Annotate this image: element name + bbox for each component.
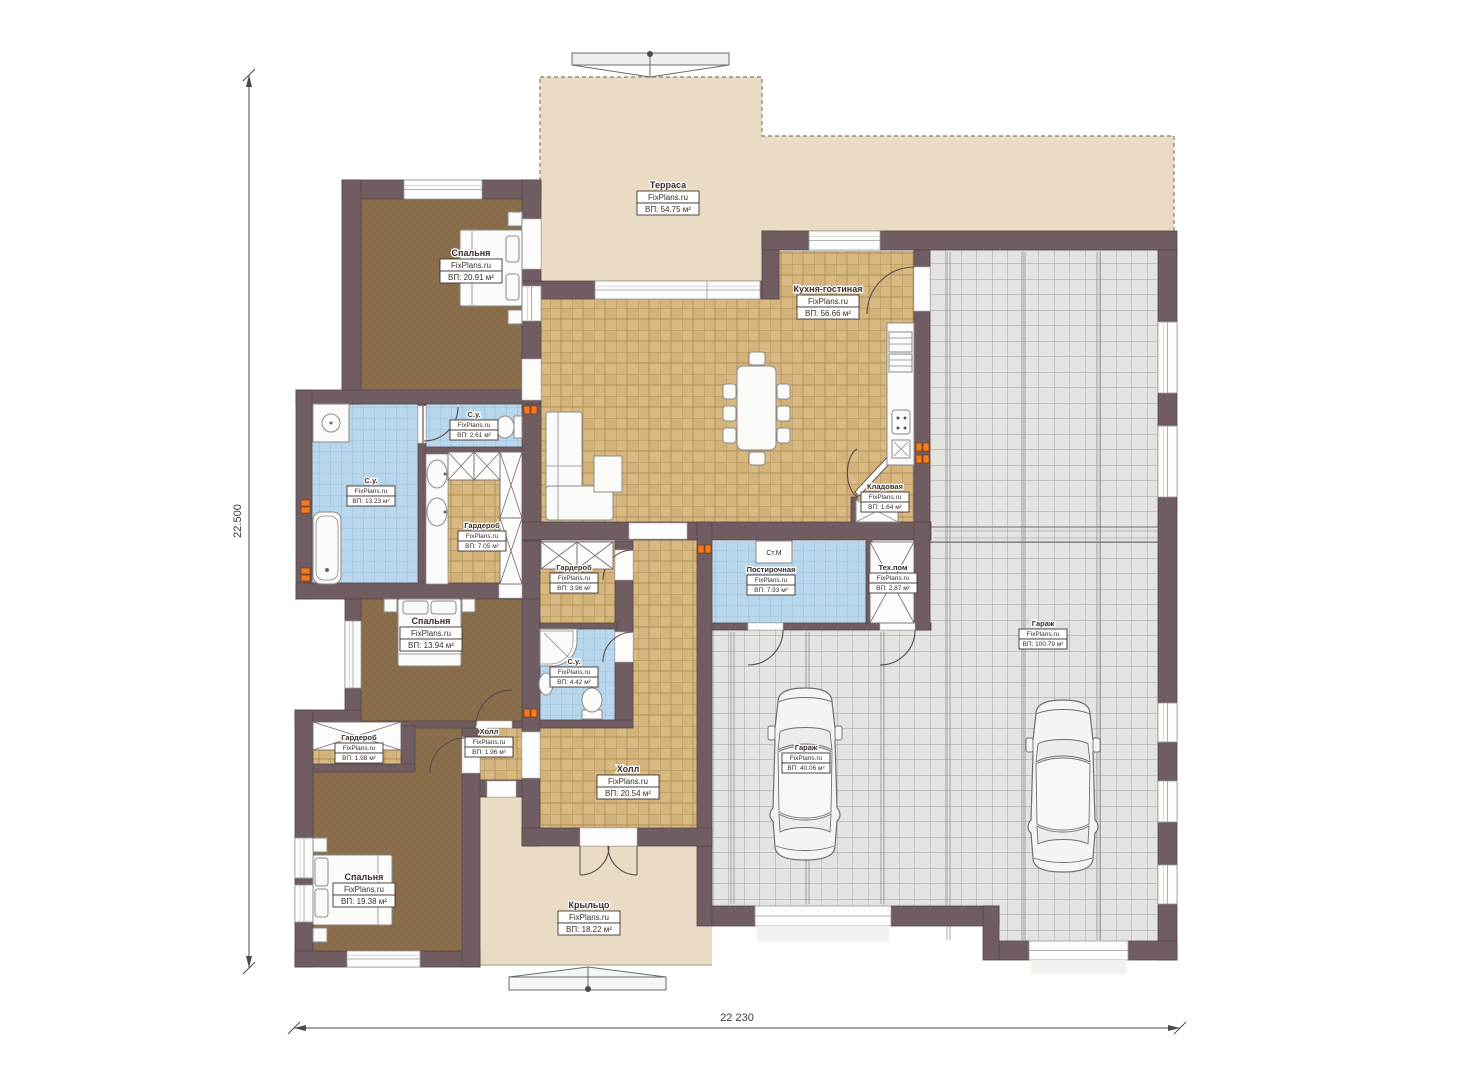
svg-text:ВП: 54.75 м²: ВП: 54.75 м² <box>645 205 691 214</box>
svg-text:Спальня: Спальня <box>412 616 451 626</box>
svg-text:ВП: 2.61 м²: ВП: 2.61 м² <box>457 432 492 439</box>
svg-text:С.у.: С.у. <box>567 657 580 666</box>
svg-text:Ст.М: Ст.М <box>766 550 781 557</box>
svg-text:FixPlans.ru: FixPlans.ru <box>344 885 384 894</box>
svg-text:С.у.: С.у. <box>467 410 480 419</box>
svg-text:ВП: 4.42 м²: ВП: 4.42 м² <box>557 679 592 686</box>
svg-text:ВП: 13.23 м²: ВП: 13.23 м² <box>352 498 390 505</box>
svg-text:ВП: 19.38 м²: ВП: 19.38 м² <box>341 897 387 906</box>
svg-text:FixPlans.ru: FixPlans.ru <box>755 577 788 584</box>
svg-text:ВП: 13.94 м²: ВП: 13.94 м² <box>408 641 454 650</box>
svg-text:ВП: 7.05 м²: ВП: 7.05 м² <box>465 543 500 550</box>
svg-text:FixPlans.ru: FixPlans.ru <box>648 193 688 202</box>
svg-text:FixPlans.ru: FixPlans.ru <box>343 745 376 752</box>
svg-text:22.500: 22.500 <box>232 504 244 538</box>
svg-text:Постирочная: Постирочная <box>747 565 796 574</box>
svg-text:22 230: 22 230 <box>720 1012 754 1024</box>
svg-text:Гардероб: Гардероб <box>464 521 500 530</box>
svg-text:Крыльцо: Крыльцо <box>569 900 610 910</box>
svg-text:FixPlans.ru: FixPlans.ru <box>569 913 609 922</box>
svg-text:ВП: 2.87 м²: ВП: 2.87 м² <box>876 585 911 592</box>
svg-text:Тех.пом: Тех.пом <box>878 563 908 572</box>
svg-text:FixPlans.ru: FixPlans.ru <box>466 533 499 540</box>
svg-text:Гардероб: Гардероб <box>556 563 592 572</box>
svg-text:ВП: 1.96 м²: ВП: 1.96 м² <box>472 749 507 756</box>
svg-text:Терраса: Терраса <box>650 180 687 190</box>
svg-text:FixPlans.ru: FixPlans.ru <box>869 494 902 501</box>
svg-text:ВП: 1.64 м²: ВП: 1.64 м² <box>868 504 903 511</box>
svg-text:ВП: 56.66 м²: ВП: 56.66 м² <box>805 309 851 318</box>
svg-text:FixPlans.ru: FixPlans.ru <box>458 422 491 429</box>
svg-text:Холл: Холл <box>480 727 499 736</box>
svg-text:ВП: 40.06 м²: ВП: 40.06 м² <box>787 765 825 772</box>
svg-text:FixPlans.ru: FixPlans.ru <box>808 297 848 306</box>
svg-text:FixPlans.ru: FixPlans.ru <box>1027 631 1060 638</box>
svg-text:С.у.: С.у. <box>364 476 377 485</box>
svg-text:Спальня: Спальня <box>452 248 491 258</box>
svg-text:Кухня-гостиная: Кухня-гостиная <box>794 284 863 294</box>
svg-text:FixPlans.ru: FixPlans.ru <box>355 488 388 495</box>
svg-text:FixPlans.ru: FixPlans.ru <box>608 777 648 786</box>
svg-text:ВП: 7.93 м²: ВП: 7.93 м² <box>754 587 789 594</box>
svg-text:FixPlans.ru: FixPlans.ru <box>473 739 506 746</box>
svg-text:ВП: 18.22 м²: ВП: 18.22 м² <box>566 925 612 934</box>
svg-text:FixPlans.ru: FixPlans.ru <box>558 669 591 676</box>
svg-text:Гардероб: Гардероб <box>341 733 377 742</box>
svg-text:Кладовая: Кладовая <box>867 482 903 491</box>
svg-text:ВП: 100.79 м²: ВП: 100.79 м² <box>1023 641 1065 648</box>
svg-text:Гараж: Гараж <box>795 743 818 752</box>
svg-text:FixPlans.ru: FixPlans.ru <box>411 629 451 638</box>
svg-text:FixPlans.ru: FixPlans.ru <box>877 575 910 582</box>
svg-text:Спальня: Спальня <box>345 872 384 882</box>
svg-text:ВП: 20.54 м²: ВП: 20.54 м² <box>605 789 651 798</box>
svg-text:FixPlans.ru: FixPlans.ru <box>451 261 491 270</box>
svg-text:ВП: 20.91 м²: ВП: 20.91 м² <box>448 273 494 282</box>
svg-text:Гараж: Гараж <box>1032 619 1055 628</box>
svg-text:FixPlans.ru: FixPlans.ru <box>558 575 591 582</box>
svg-text:ВП: 1.98 м²: ВП: 1.98 м² <box>342 755 377 762</box>
svg-text:ВП: 3.96 м²: ВП: 3.96 м² <box>557 585 592 592</box>
svg-text:FixPlans.ru: FixPlans.ru <box>790 755 823 762</box>
svg-text:Холл: Холл <box>617 764 640 774</box>
